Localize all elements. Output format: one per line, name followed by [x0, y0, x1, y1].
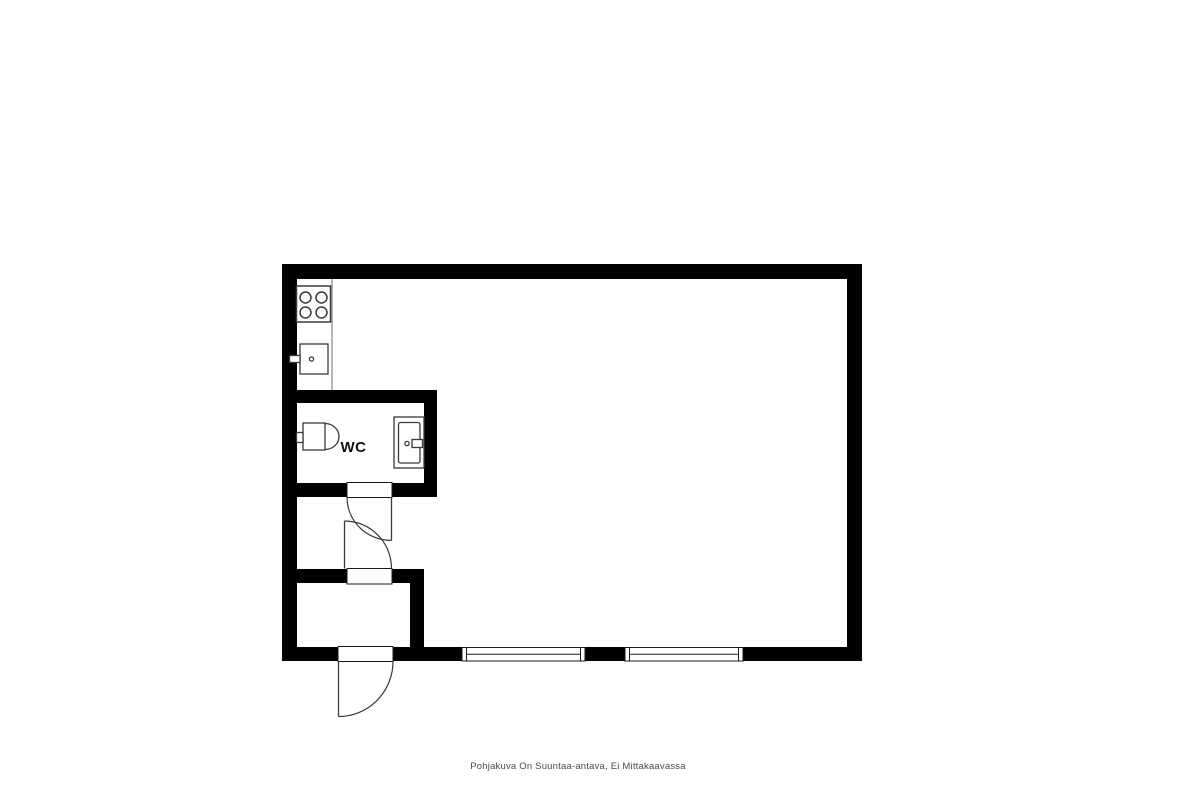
wall-top — [282, 264, 862, 279]
entrance-door — [338, 647, 393, 717]
wc-door-opening — [347, 483, 392, 498]
wc-door — [347, 483, 392, 541]
entrance-door-swing-arc — [339, 662, 394, 717]
floor-plan-image: WC Pohjakuva On Suuntaa-antava, Ei Mitta… — [0, 0, 1200, 800]
window-2 — [625, 648, 743, 662]
outer-walls — [282, 264, 862, 661]
floor-plan-canvas: WC Pohjakuva On Suuntaa-antava, Ei Mitta… — [0, 0, 1200, 800]
vestibule-door-swing-arc — [345, 521, 392, 569]
wall-vestibule-right — [410, 569, 424, 661]
vestibule-door — [345, 521, 393, 584]
wc-room: WC — [297, 417, 425, 468]
wc-door-swing-arc — [347, 498, 392, 541]
wc-sink-icon — [394, 417, 424, 468]
wall-left — [282, 264, 297, 661]
wc-label: WC — [341, 439, 367, 456]
entrance-door-opening — [338, 647, 393, 662]
window-1 — [462, 648, 585, 662]
stove-icon — [297, 286, 331, 322]
wall-wc-top — [297, 390, 437, 403]
wall-wc-right — [424, 390, 437, 497]
wall-right — [847, 264, 862, 661]
toilet-icon — [297, 423, 340, 450]
caption: Pohjakuva On Suuntaa-antava, Ei Mittakaa… — [470, 761, 686, 772]
vestibule-door-opening — [347, 569, 392, 585]
